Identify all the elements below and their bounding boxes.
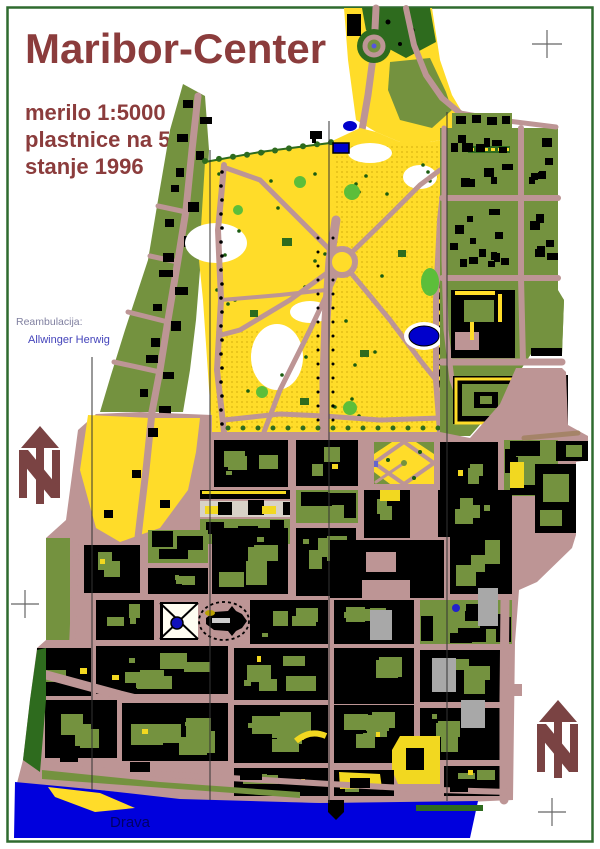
svg-text:merilo 1:5000: merilo 1:5000 — [25, 100, 166, 125]
svg-text:Maribor-Center: Maribor-Center — [25, 25, 326, 72]
svg-text:Reambulacija:: Reambulacija: — [16, 316, 83, 328]
svg-text:Allwinger Herwig: Allwinger Herwig — [28, 334, 110, 346]
svg-text:plastnice na 5m: plastnice na 5m — [25, 127, 190, 152]
svg-text:Drava: Drava — [110, 814, 151, 831]
svg-text:stanje 1996: stanje 1996 — [25, 154, 144, 179]
